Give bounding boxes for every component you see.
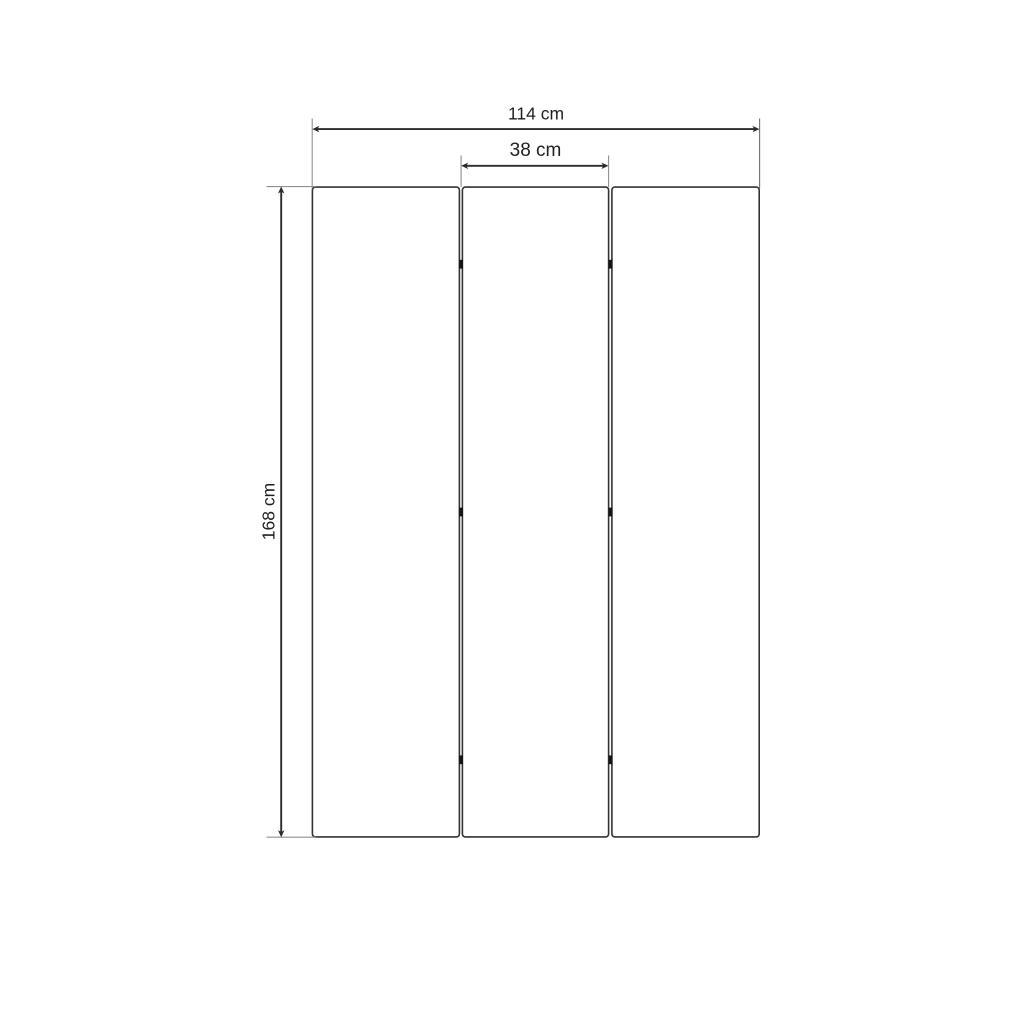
svg-text:168 cm: 168 cm <box>259 483 279 540</box>
svg-text:114 cm: 114 cm <box>508 104 564 124</box>
svg-text:38 cm: 38 cm <box>510 140 562 161</box>
